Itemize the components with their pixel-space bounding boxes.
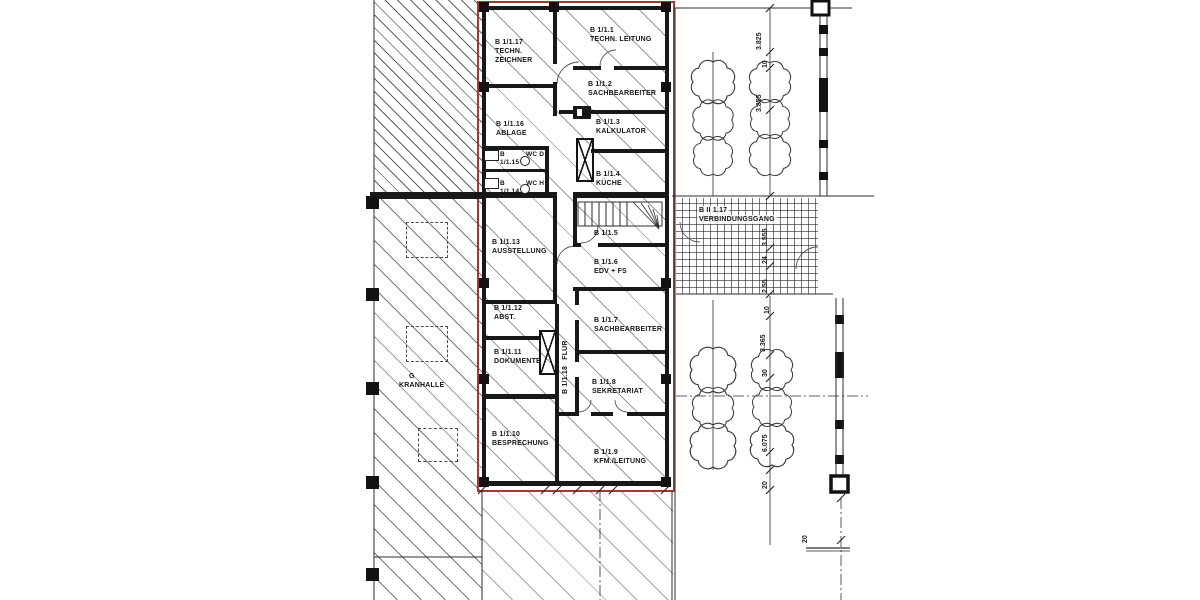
room-label-edv-fs: B 1/1.6EDV + FS [594, 258, 644, 276]
column [366, 568, 379, 581]
room-label-wc-h: B 1/1.14WC H [500, 180, 558, 197]
column [661, 82, 671, 92]
wall [575, 350, 669, 354]
wall [370, 192, 482, 199]
column [366, 476, 379, 489]
room-label-kueche: B 1/1.4KÜCHE [596, 170, 646, 188]
room-label-kranhalle: G KRANHALLE [399, 372, 459, 390]
room-label-besprechung: B 1/1.10BESPRECHUNG [492, 430, 554, 448]
room-label-techn-zeichner: B 1/1.17TECHN. ZEICHNER [495, 38, 541, 65]
vent-shaft [576, 138, 594, 182]
column-bottom-right [831, 476, 848, 492]
room-label-kalkulator: B 1/1.3KALKULATOR [596, 118, 656, 136]
wall [577, 192, 669, 198]
dimension-label: 10 [764, 306, 771, 314]
sink-icon [484, 178, 499, 189]
dimension-label: 10 [762, 60, 769, 68]
room-label-flur: B 1/1.18 FLUR [561, 340, 570, 394]
room-label-ablage: B 1/1.16ABLAGE [496, 120, 546, 138]
wall [482, 6, 669, 10]
room-label-techn-leitung: B 1/1.1TECHN. LEITUNG [590, 26, 656, 44]
facade-wall-blocks [819, 25, 844, 464]
crane-field-marker [406, 326, 448, 362]
room-label-dokumente: B 1/1.11DOKUMENTE [494, 348, 549, 366]
room-label-sachbearbeiter-2: B 1/1.7SACHBEARBEITER [594, 316, 666, 334]
wall [573, 287, 669, 291]
dimension-label: 3.855 [756, 94, 763, 112]
column [661, 374, 671, 384]
wall [553, 6, 557, 64]
tree-icon-group [690, 60, 793, 468]
room-label-wc-d: B 1/1.15WC D [500, 151, 558, 168]
dimension-label: 20 [762, 481, 769, 489]
wall [573, 192, 577, 245]
dimension-label: 3.555 [762, 228, 769, 246]
column [661, 477, 671, 487]
wall [575, 291, 579, 305]
wall [573, 66, 601, 70]
wall [575, 320, 579, 362]
wall [575, 377, 579, 414]
room-label-treppe: B 1/1.5 [594, 229, 634, 238]
column [661, 2, 671, 12]
room-label-sachbearbeiter-1: B 1/1.2SACHBEARBEITER [588, 80, 660, 98]
room-label-sekretariat: B 1/1.8SEKRETARIAT [592, 378, 654, 396]
column [479, 374, 489, 384]
wall [614, 66, 669, 70]
stair [578, 202, 662, 229]
crane-field-marker [418, 428, 458, 462]
dimension-label: 30 [762, 369, 769, 377]
wall [482, 394, 559, 399]
shaft-cabinet [573, 106, 591, 119]
wall [482, 481, 669, 486]
sink-icon [484, 150, 499, 161]
floor-plan: B 1/1.17TECHN. ZEICHNER B 1/1.1TECHN. LE… [0, 0, 1200, 600]
column [661, 278, 671, 288]
wall [591, 412, 613, 416]
column [366, 196, 379, 209]
room-label-kfm-leitung: B 1/1.9KFM./LEITUNG [594, 448, 656, 466]
wall [553, 198, 557, 304]
column [366, 382, 379, 395]
column [479, 2, 489, 12]
column [366, 288, 379, 301]
wall [591, 149, 669, 153]
column [479, 82, 489, 92]
room-label-verbindungsgang: B II 1.17 VERBINDUNGSGANG [697, 206, 807, 224]
dimension-label: 3.365 [760, 334, 767, 352]
wall [482, 336, 540, 340]
wall [598, 243, 669, 247]
dimension-label: 24 [762, 256, 769, 264]
column [479, 477, 489, 487]
dimension-label: 6.075 [762, 434, 769, 452]
dimension-label: 20 [802, 535, 809, 543]
crane-field-marker [406, 222, 448, 258]
dimension-label: 2.55 [762, 279, 769, 293]
column [549, 2, 559, 12]
wall [482, 169, 545, 172]
column-top-right [812, 1, 829, 15]
shaft-cabinet-notch [577, 109, 582, 116]
room-label-ausstellung: B 1/1.13AUSSTELLUNG [492, 238, 550, 256]
dimension-label: 3.825 [756, 32, 763, 50]
wall [555, 412, 559, 485]
wall [573, 243, 581, 247]
room-label-abst: B 1/1.12ABST. [494, 304, 544, 322]
column [479, 278, 489, 288]
wall [482, 84, 557, 88]
wall [482, 6, 486, 485]
wall [627, 412, 669, 416]
